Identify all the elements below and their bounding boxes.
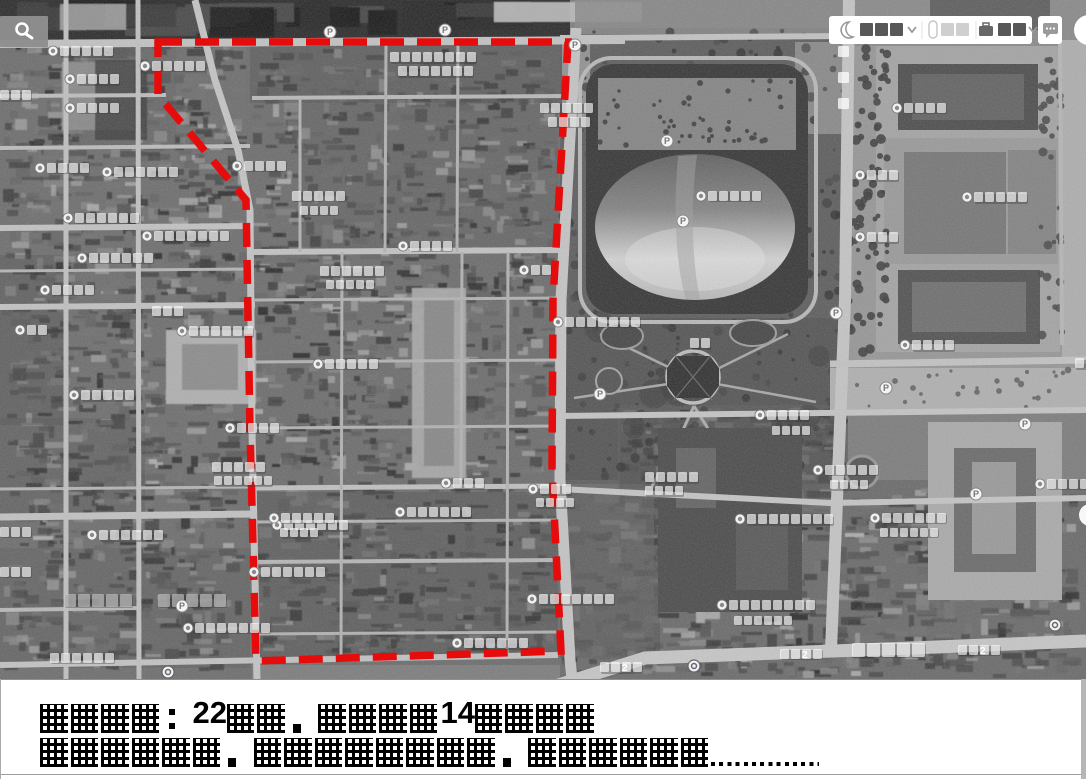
svg-text:2: 2 (980, 646, 986, 657)
svg-text:P: P (572, 40, 578, 50)
svg-text:P: P (327, 27, 333, 37)
svg-text:P: P (597, 389, 603, 399)
svg-text:P: P (664, 136, 670, 146)
svg-text:P: P (833, 308, 839, 318)
svg-text:P: P (179, 601, 185, 611)
svg-text:P: P (1022, 419, 1028, 429)
svg-text:2: 2 (802, 650, 808, 661)
svg-text:P: P (680, 216, 686, 226)
svg-text:P: P (883, 383, 889, 393)
svg-text:2: 2 (622, 663, 628, 674)
svg-text:P: P (973, 489, 979, 499)
svg-text:P: P (442, 25, 448, 35)
